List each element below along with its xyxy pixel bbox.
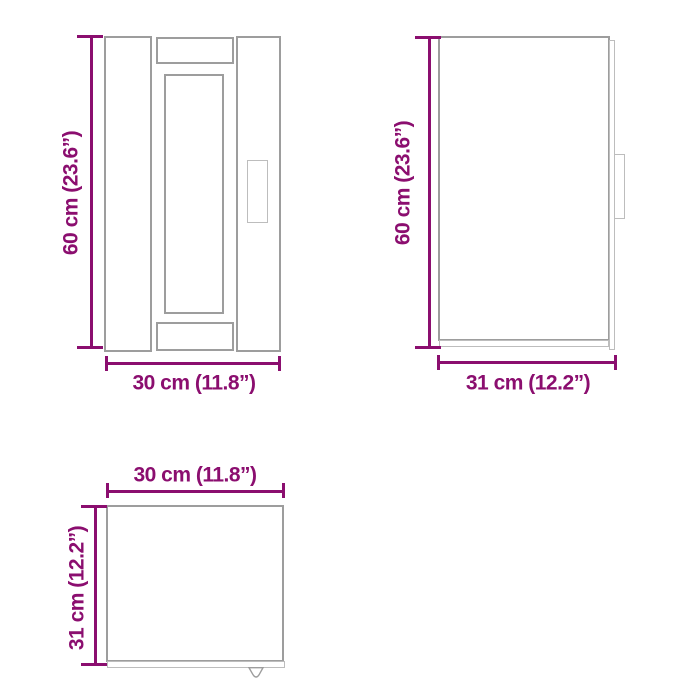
side-door-handle [614, 154, 625, 219]
top-view: 30 cm (11.8”) 31 cm (12.2”) [0, 0, 700, 700]
top-depth-label: 31 cm (12.2”) [67, 526, 88, 650]
top-carcass [106, 505, 284, 662]
top-width-dimension-cap-right [282, 483, 285, 498]
top-width-dimension-cap-left [106, 483, 109, 498]
top-width-label: 30 cm (11.8”) [133, 465, 256, 486]
top-depth-dimension-line [94, 506, 97, 666]
top-depth-dimension-cap-bottom [81, 663, 107, 666]
top-depth-dimension-cap-top [81, 505, 107, 508]
top-width-dimension-line [107, 490, 284, 493]
product-dimension-diagram: 60 cm (23.6”) 30 cm (11.8”) 60 cm (23.6”… [0, 0, 700, 700]
top-door-knob [248, 667, 264, 678]
